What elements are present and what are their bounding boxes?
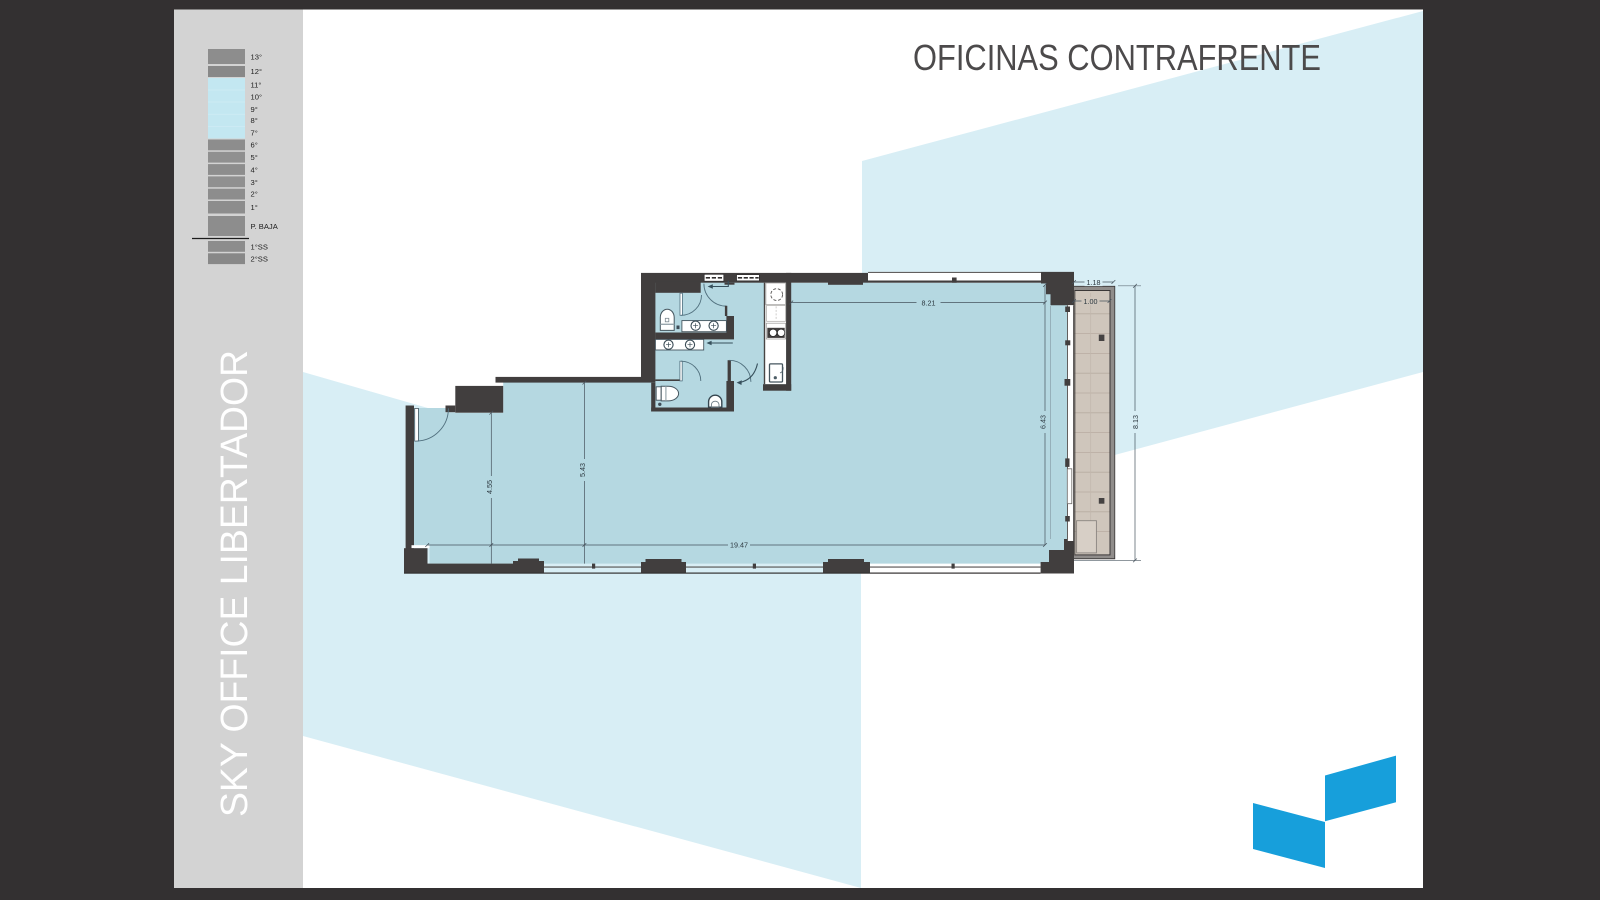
svg-text:8°: 8° [251, 116, 258, 125]
svg-text:12°: 12° [251, 67, 262, 76]
svg-text:5.43: 5.43 [578, 463, 587, 477]
svg-text:11°: 11° [251, 81, 262, 90]
svg-text:2°SS: 2°SS [251, 255, 268, 264]
svg-text:1.18: 1.18 [1087, 278, 1101, 287]
svg-text:1°SS: 1°SS [251, 242, 268, 251]
svg-text:6°: 6° [251, 140, 258, 149]
svg-text:8.13: 8.13 [1131, 415, 1140, 429]
svg-text:2°: 2° [251, 190, 258, 199]
svg-text:P. BAJA: P. BAJA [251, 222, 279, 231]
svg-text:OFICINAS CONTRAFRENTE: OFICINAS CONTRAFRENTE [913, 37, 1321, 78]
svg-text:5°: 5° [251, 153, 258, 162]
svg-text:4°: 4° [251, 166, 258, 175]
svg-text:4.55: 4.55 [485, 480, 494, 494]
svg-text:9°: 9° [251, 105, 258, 114]
svg-text:19.47: 19.47 [730, 541, 748, 550]
svg-text:SKY OFFICE LIBERTADOR: SKY OFFICE LIBERTADOR [214, 350, 256, 817]
svg-text:8.21: 8.21 [922, 298, 936, 307]
svg-text:10°: 10° [251, 93, 262, 102]
svg-text:13°: 13° [251, 53, 262, 62]
svg-text:7°: 7° [251, 128, 258, 137]
svg-text:1°: 1° [251, 203, 258, 212]
svg-text:1.00: 1.00 [1084, 297, 1098, 306]
svg-text:6.43: 6.43 [1039, 415, 1048, 429]
svg-text:3°: 3° [251, 178, 258, 187]
